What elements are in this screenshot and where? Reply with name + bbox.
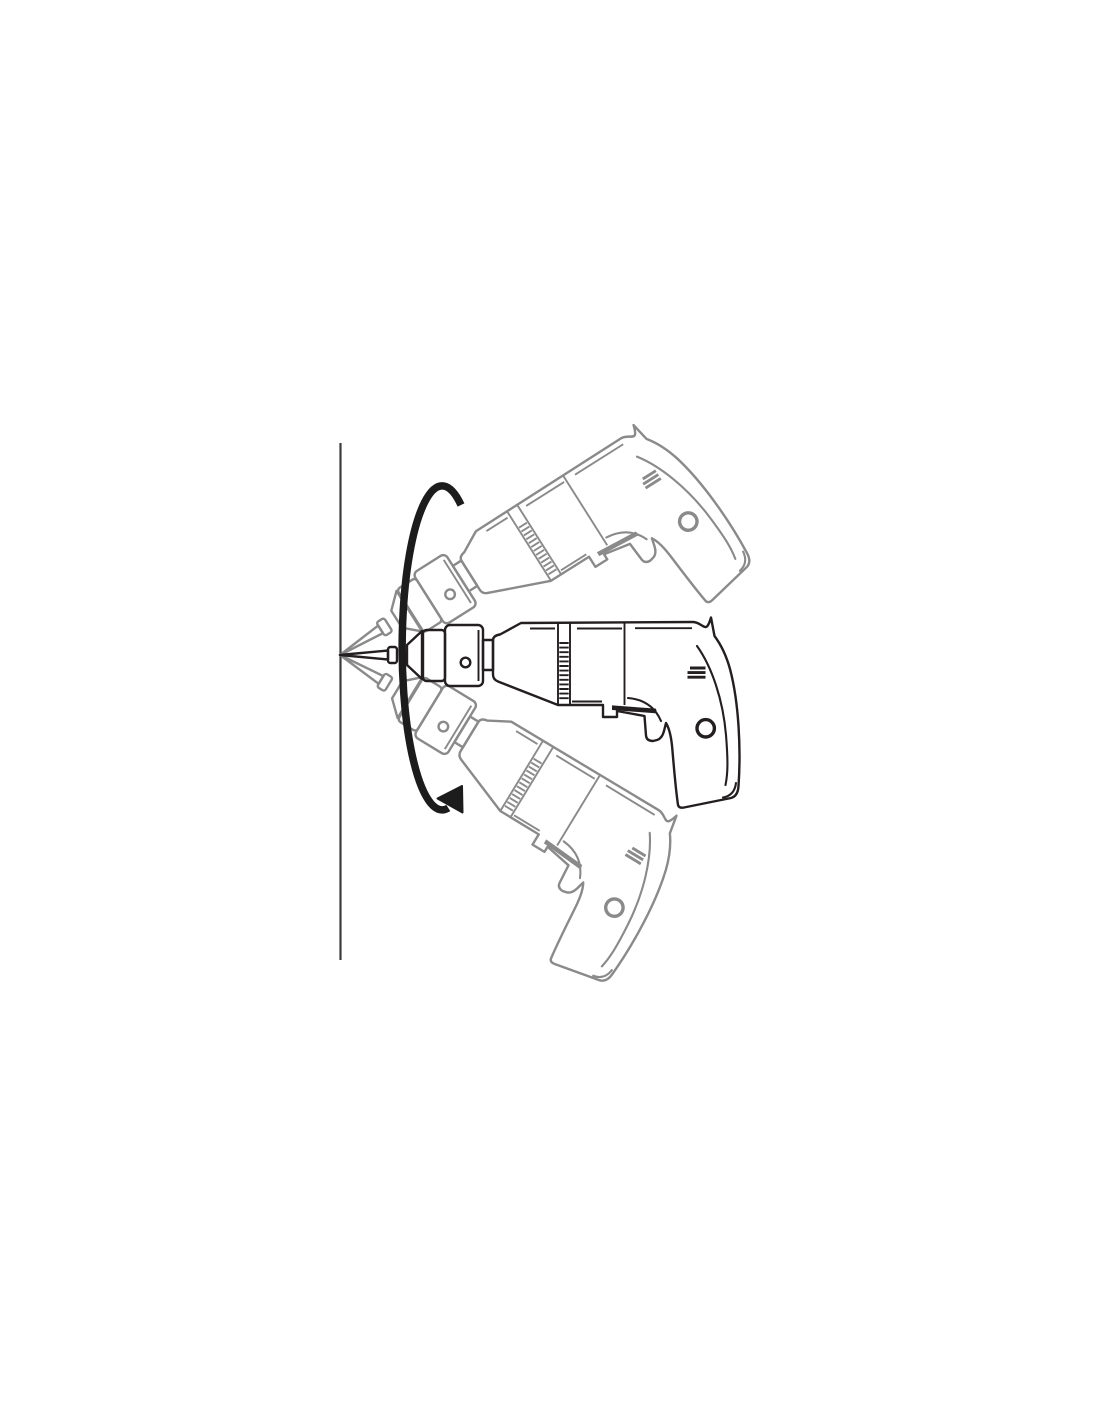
rotation-arrow xyxy=(402,486,462,813)
drill-pivot-diagram xyxy=(0,0,1100,1422)
drill-ghost-lower xyxy=(261,623,701,993)
drill-ghost-upper xyxy=(320,410,759,784)
figure-canvas xyxy=(0,0,1100,1422)
rotation-arrow-arc xyxy=(402,486,461,810)
